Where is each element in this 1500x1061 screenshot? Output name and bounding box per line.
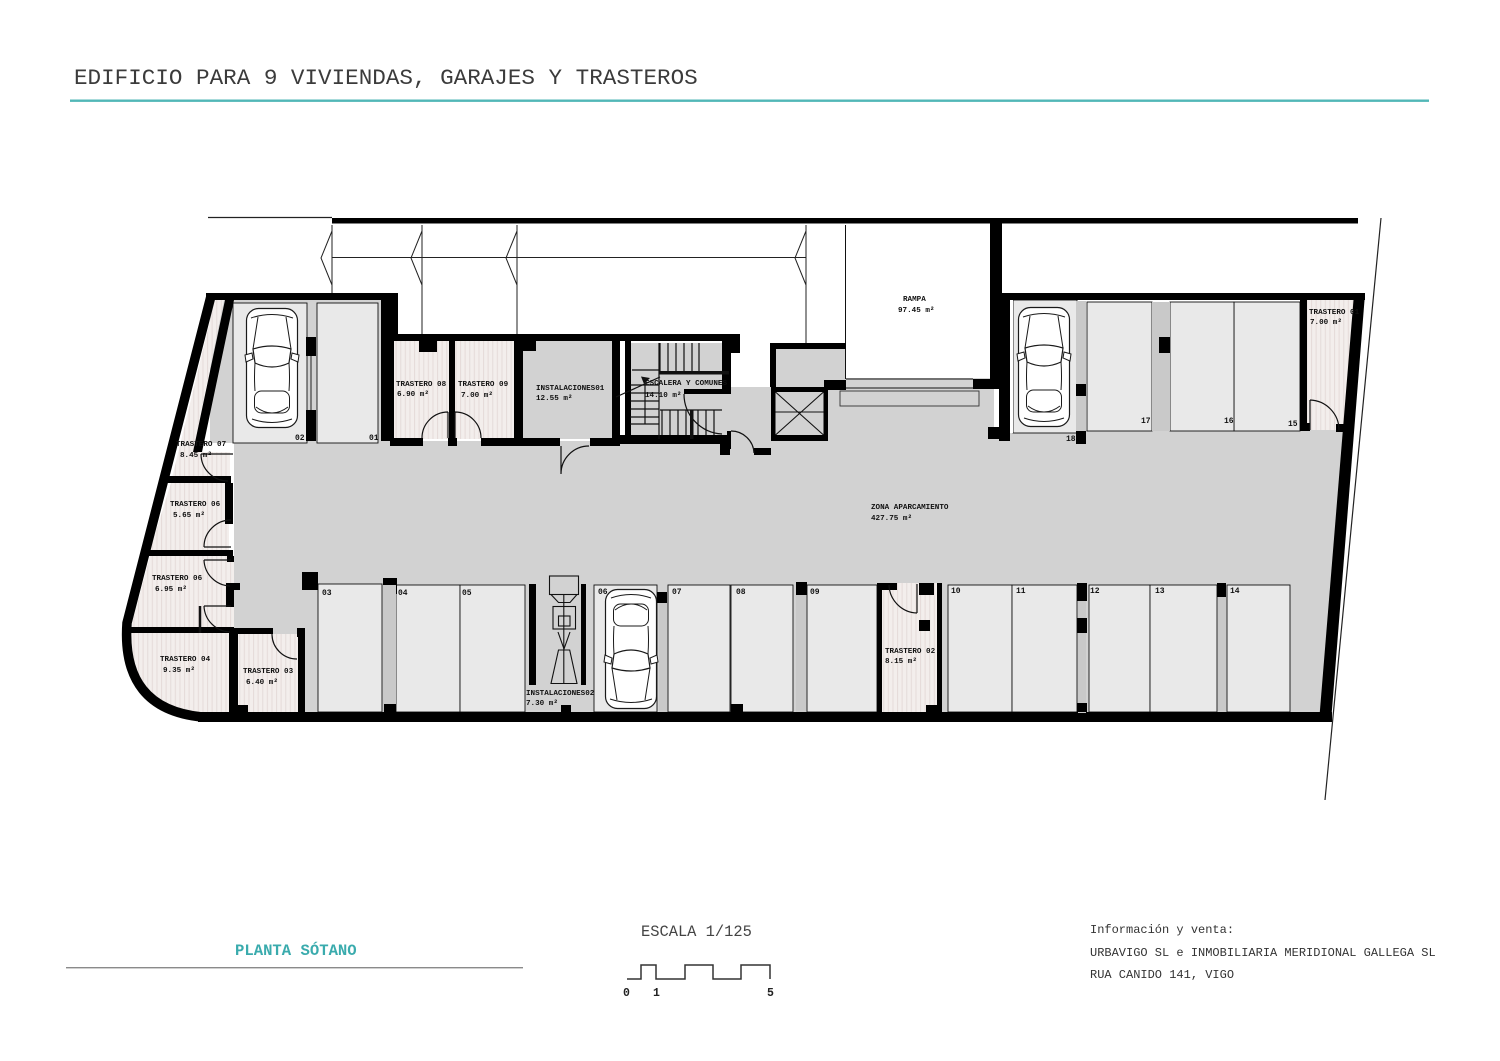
svg-text:INSTALACIONES01: INSTALACIONES01 [536, 385, 605, 393]
svg-text:TRASTERO 01: TRASTERO 01 [1309, 309, 1360, 317]
svg-text:TRASTERO 02: TRASTERO 02 [885, 648, 936, 656]
svg-text:TRASTERO 07: TRASTERO 07 [176, 441, 227, 449]
svg-text:6.40 m²: 6.40 m² [246, 678, 278, 687]
svg-text:INSTALACIONES02: INSTALACIONES02 [526, 690, 595, 698]
svg-text:6.95 m²: 6.95 m² [155, 585, 187, 594]
svg-text:10: 10 [951, 587, 961, 596]
svg-text:16: 16 [1224, 417, 1234, 426]
svg-text:12: 12 [1090, 587, 1100, 596]
svg-text:09: 09 [810, 588, 820, 597]
svg-text:14: 14 [1230, 587, 1240, 596]
svg-text:ZONA APARCAMIENTO: ZONA APARCAMIENTO [871, 504, 949, 512]
svg-text:TRASTERO 06: TRASTERO 06 [170, 501, 221, 509]
svg-text:EDIFICIO PARA 9 VIVIENDAS, GAR: EDIFICIO PARA 9 VIVIENDAS, GARAJES Y TRA… [74, 65, 698, 91]
svg-text:01: 01 [369, 434, 379, 443]
svg-text:RUA CANIDO 141, VIGO: RUA CANIDO 141, VIGO [1090, 968, 1234, 982]
svg-text:15: 15 [1288, 420, 1298, 429]
svg-text:05: 05 [462, 589, 472, 598]
svg-text:TRASTERO 09: TRASTERO 09 [458, 381, 509, 389]
svg-text:13: 13 [1155, 587, 1165, 596]
svg-text:06: 06 [598, 588, 608, 597]
svg-text:5: 5 [767, 987, 774, 1000]
svg-text:8.15 m²: 8.15 m² [885, 657, 917, 666]
svg-text:18: 18 [1066, 435, 1076, 444]
svg-text:TRASTERO 06: TRASTERO 06 [152, 575, 203, 583]
svg-text:5.65 m²: 5.65 m² [173, 511, 205, 520]
svg-text:0: 0 [623, 987, 630, 1000]
svg-text:8.45 m²: 8.45 m² [180, 451, 212, 460]
svg-text:17: 17 [1141, 417, 1151, 426]
svg-text:07: 07 [672, 588, 682, 597]
svg-text:02: 02 [295, 434, 305, 443]
svg-text:Información y venta:: Información y venta: [1090, 923, 1234, 937]
svg-text:URBAVIGO SL e INMOBILIARIA MER: URBAVIGO SL e INMOBILIARIA MERIDIONAL GA… [1090, 946, 1436, 960]
svg-text:7.00 m²: 7.00 m² [1310, 318, 1342, 327]
svg-text:97.45 m²: 97.45 m² [898, 306, 934, 315]
svg-text:6.90 m²: 6.90 m² [397, 390, 429, 399]
svg-text:12.55 m²: 12.55 m² [536, 394, 572, 403]
svg-text:04: 04 [398, 589, 408, 598]
svg-text:TRASTERO 08: TRASTERO 08 [396, 381, 447, 389]
svg-text:11: 11 [1016, 587, 1026, 596]
svg-text:1: 1 [653, 987, 660, 1000]
svg-text:03: 03 [322, 589, 332, 598]
svg-text:9.35 m²: 9.35 m² [163, 666, 195, 675]
svg-text:7.00 m²: 7.00 m² [461, 391, 493, 400]
svg-text:ESCALA 1/125: ESCALA 1/125 [641, 923, 752, 941]
svg-text:TRASTERO 03: TRASTERO 03 [243, 668, 294, 676]
svg-text:14.10 m²: 14.10 m² [645, 391, 681, 400]
svg-text:427.75 m²: 427.75 m² [871, 514, 912, 523]
svg-text:7.30 m²: 7.30 m² [526, 699, 558, 708]
svg-text:PLANTA SÓTANO: PLANTA SÓTANO [235, 941, 357, 960]
svg-text:TRASTERO 04: TRASTERO 04 [160, 656, 211, 664]
svg-text:08: 08 [736, 588, 746, 597]
svg-text:RAMPA: RAMPA [903, 296, 926, 304]
svg-text:ESCALERA Y COMUNES: ESCALERA Y COMUNES [645, 380, 727, 388]
